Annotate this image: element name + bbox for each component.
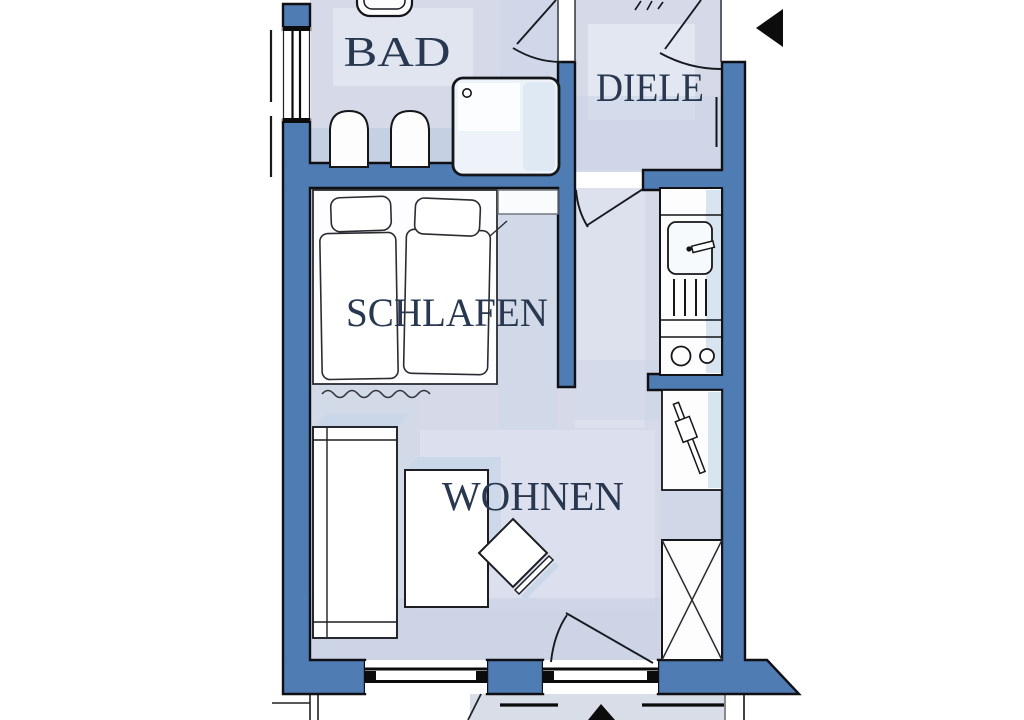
floor-plan-page: BAD DIELE SCHLAFEN WOHNEN — [0, 0, 1024, 720]
floor-patch — [660, 490, 722, 540]
sofa-symbol — [313, 414, 410, 638]
room-label-diele: DIELE — [596, 65, 704, 110]
window-void — [365, 661, 487, 693]
floor-plan-canvas: BAD DIELE SCHLAFEN WOHNEN — [0, 0, 1024, 720]
window-cap — [647, 671, 658, 682]
window-cap — [476, 671, 487, 682]
shower-symbol — [453, 78, 559, 175]
window-bad-left — [282, 26, 311, 123]
pillow — [414, 198, 481, 237]
sofa-bevel — [313, 414, 410, 427]
balcony-below — [272, 694, 744, 720]
window-cap — [283, 26, 311, 31]
window-bottom-left — [365, 661, 487, 693]
room-label-bad: BAD — [344, 30, 451, 76]
heater-symbol — [662, 390, 722, 490]
entrance-arrow-icon — [756, 9, 783, 47]
toilet-symbol — [357, 0, 412, 16]
window-cap — [543, 671, 554, 682]
room-label-schlafen: SCHLAFEN — [346, 290, 548, 335]
cooktop-burner — [700, 349, 714, 363]
balcony-door-window — [543, 661, 658, 693]
table-bevel — [405, 457, 501, 470]
shower-tint — [523, 82, 555, 171]
pillow — [330, 196, 391, 232]
wall-shelf — [498, 190, 558, 214]
wall-bottom-pier — [487, 660, 543, 694]
pedestal-fixture — [391, 111, 429, 167]
window-cap — [365, 671, 376, 682]
counter-tint — [706, 190, 721, 373]
shower-drain — [463, 89, 471, 97]
faucet-base — [686, 246, 691, 251]
wardrobe-symbol — [662, 540, 722, 660]
window-void — [543, 661, 658, 693]
pedestal-fixture — [330, 111, 368, 167]
room-label-wohnen: WOHNEN — [442, 473, 624, 519]
cooktop-burner — [672, 347, 691, 366]
window-void — [282, 27, 311, 121]
heater-tint — [708, 392, 721, 488]
sofa-body — [313, 427, 397, 638]
kitchenette — [660, 188, 722, 375]
window-cap — [283, 118, 311, 123]
